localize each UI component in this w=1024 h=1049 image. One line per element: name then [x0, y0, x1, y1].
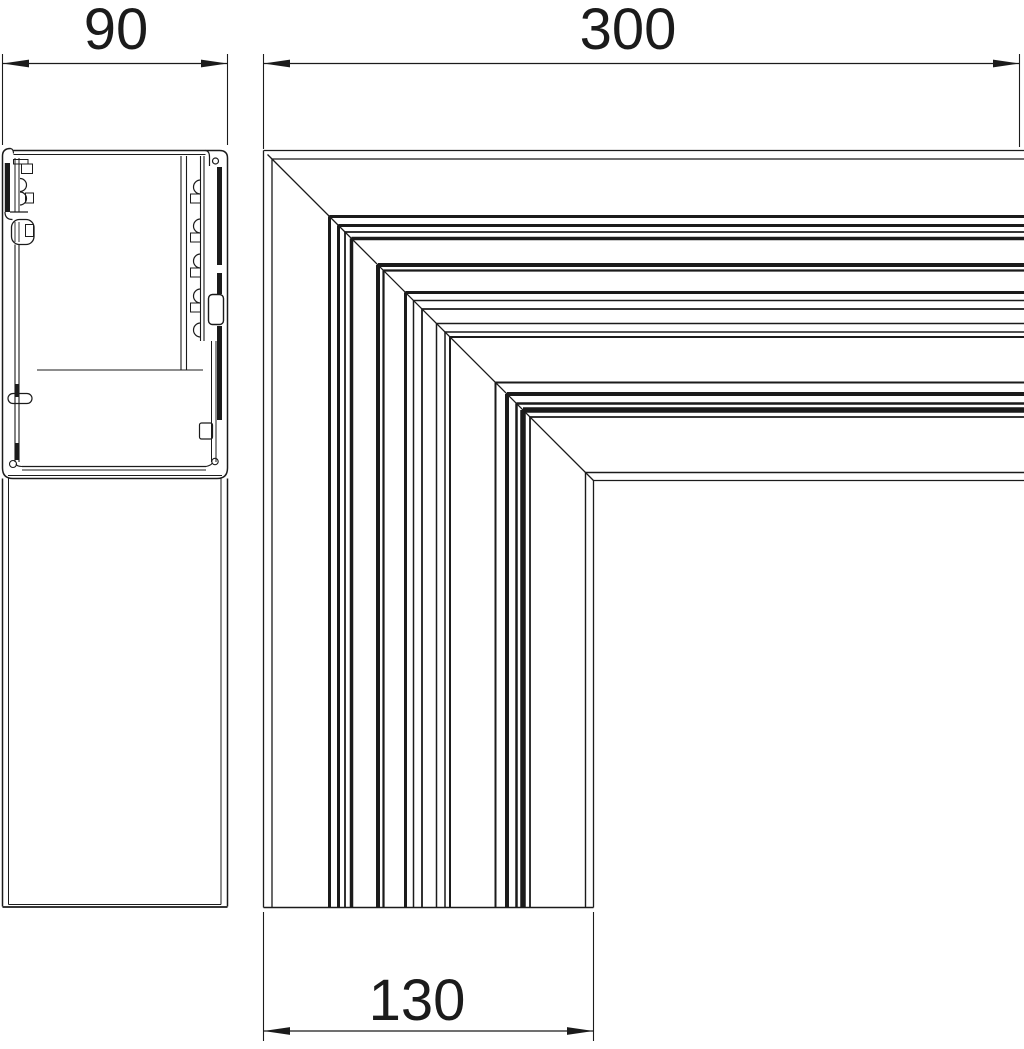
inner-wall-left-bar2 [15, 443, 19, 460]
rim-curl-right [213, 158, 219, 164]
right-retainer-tab [191, 268, 201, 277]
profile-cross-section-view [3, 149, 228, 479]
trunking-corner-drawing: 90 300 130 [0, 0, 1024, 1049]
floor-curl-left [10, 461, 17, 468]
arrowhead-right-icon [201, 60, 228, 68]
floor-curl-right-link [206, 463, 212, 467]
right-retainer-tab [191, 194, 201, 203]
right-retainer-tab [191, 233, 201, 242]
dimension-300: 300 [264, 0, 1020, 149]
wall-to-clip-curl [5, 212, 13, 220]
left-wall-bar [5, 163, 10, 212]
corner-piece-plan-view [264, 151, 1024, 908]
dimension-90: 90 [3, 0, 228, 145]
conductor-bracket [8, 394, 32, 404]
hinge-channel-walls [15, 158, 19, 212]
dimension-300-label: 300 [580, 0, 677, 62]
arrowhead-left-icon [264, 60, 291, 68]
cover-leg-right [181, 156, 187, 370]
inner-wall-left-bar [15, 384, 19, 397]
dimension-130-label: 130 [369, 968, 466, 1033]
arrowhead-left-icon [264, 1027, 291, 1035]
cover-clip-left-tab [22, 164, 33, 174]
p-clip-inner [15, 222, 19, 242]
dimension-130: 130 [264, 912, 594, 1041]
right-retainer-tab [191, 303, 201, 312]
right-retainer-teeth [194, 180, 201, 337]
rim-curl-left [11, 149, 14, 154]
duct-side-view [3, 479, 228, 908]
arrowhead-left-icon [3, 60, 30, 68]
right-wall-bar3 [217, 326, 222, 420]
arrowhead-right-icon [567, 1027, 594, 1035]
right-wall-bar [217, 167, 222, 265]
cover-clip-left [14, 160, 29, 165]
inner-wall-right [212, 341, 217, 462]
cable-clamp-slot [209, 295, 224, 325]
lower-clamp-slot [200, 423, 213, 439]
technical-drawing-page: 90 300 130 [0, 0, 1024, 1049]
miter-diagonal [268, 155, 594, 481]
dimension-90-label: 90 [84, 0, 149, 62]
p-clip-tab [26, 225, 34, 237]
arrowhead-right-icon [993, 60, 1020, 68]
right-wall-bar2 [217, 273, 222, 294]
cover-hook-right [206, 151, 210, 167]
inner-wall-left [15, 245, 19, 463]
teeth-spine [201, 156, 205, 341]
floor-curl-right [212, 458, 218, 464]
